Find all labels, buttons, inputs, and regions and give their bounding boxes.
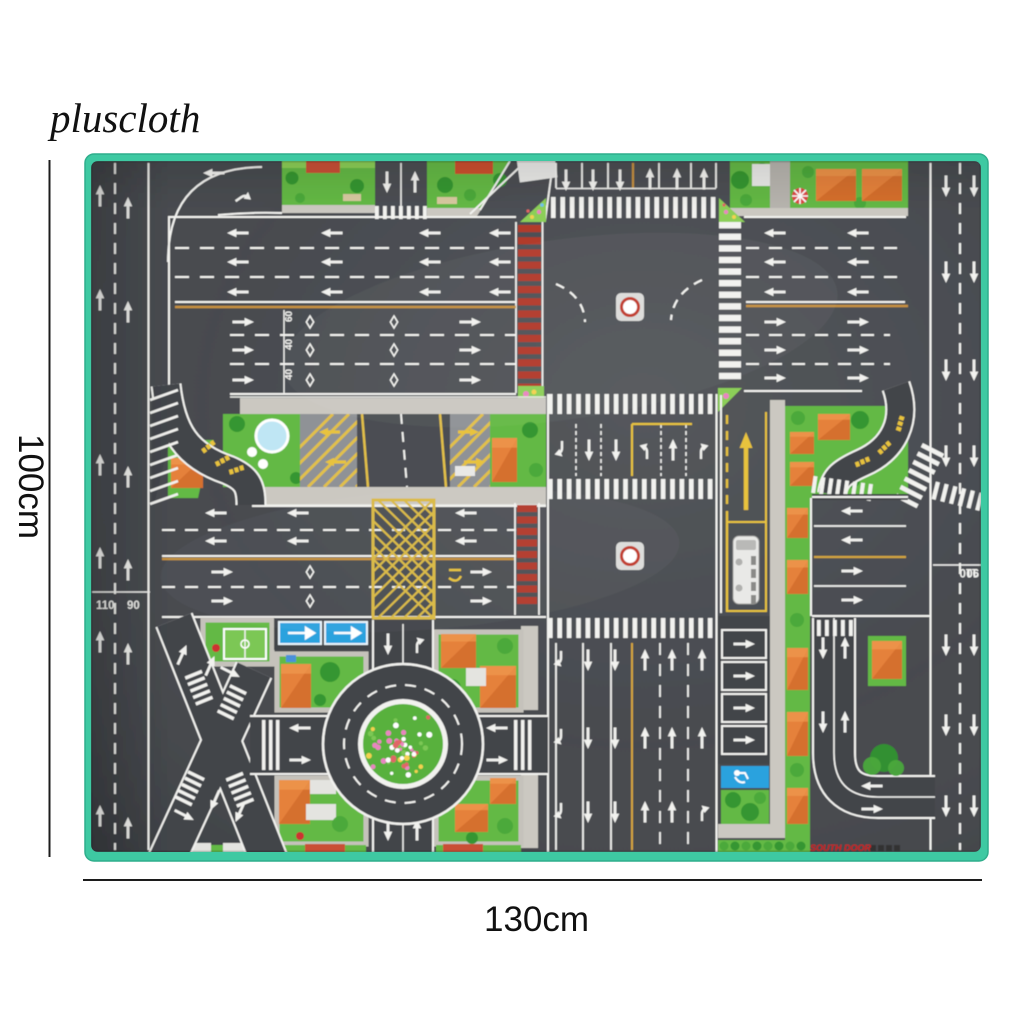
svg-text:90: 90 <box>966 566 979 578</box>
svg-text:100cm: 100cm <box>11 434 50 539</box>
svg-text:60: 60 <box>284 310 295 322</box>
svg-text:pluscloth: pluscloth <box>47 95 200 141</box>
svg-text:130cm: 130cm <box>484 900 589 939</box>
